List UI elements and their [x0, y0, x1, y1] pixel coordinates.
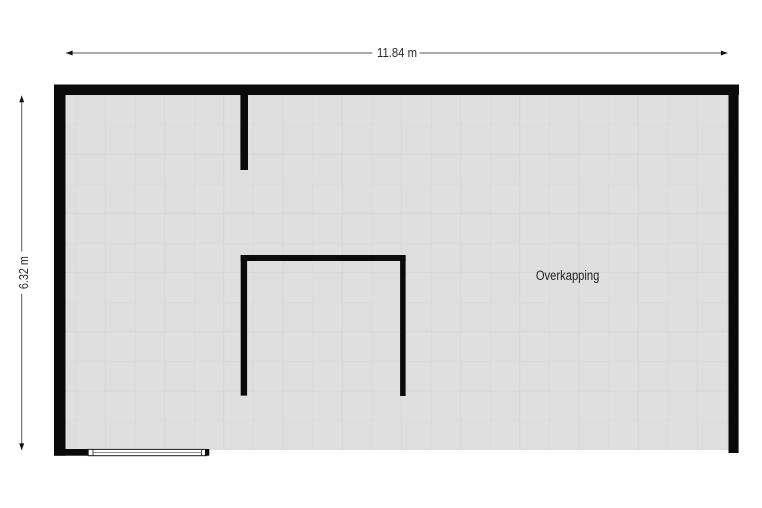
svg-text:Overkapping: Overkapping: [536, 268, 600, 283]
svg-text:6.32 m: 6.32 m: [16, 256, 31, 289]
svg-text:11.84 m: 11.84 m: [377, 45, 417, 60]
